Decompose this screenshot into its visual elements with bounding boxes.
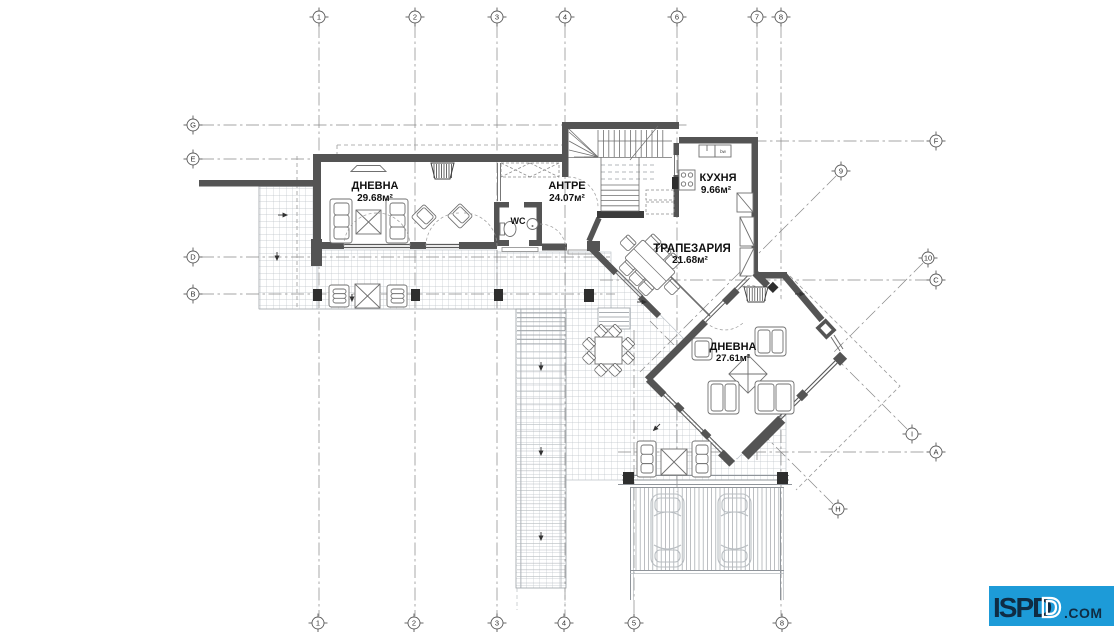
svg-text:E: E <box>190 155 195 164</box>
svg-text:C: C <box>933 276 939 285</box>
svg-text:.COM: .COM <box>1064 605 1103 621</box>
svg-text:3: 3 <box>495 619 499 628</box>
svg-text:ДНЕВНА: ДНЕВНА <box>710 341 757 353</box>
svg-text:27.61м²: 27.61м² <box>716 353 750 364</box>
svg-text:A: A <box>933 448 938 457</box>
svg-text:6: 6 <box>675 13 679 22</box>
svg-text:bw: bw <box>720 149 727 154</box>
svg-text:4: 4 <box>563 13 567 22</box>
svg-text:2: 2 <box>413 13 417 22</box>
svg-text:2: 2 <box>412 619 416 628</box>
svg-text:B: B <box>190 290 195 299</box>
svg-text:8: 8 <box>780 619 784 628</box>
svg-text:24.07м²: 24.07м² <box>549 193 585 204</box>
svg-text:1: 1 <box>317 13 321 22</box>
svg-text:7: 7 <box>755 13 759 22</box>
svg-text:9.66м²: 9.66м² <box>701 185 732 196</box>
svg-text:3: 3 <box>495 13 499 22</box>
svg-text:ТРАПЕЗАРИЯ: ТРАПЕЗАРИЯ <box>653 243 731 255</box>
svg-text:10: 10 <box>924 254 932 263</box>
svg-text:WC: WC <box>511 216 526 226</box>
svg-text:ДНЕВНА: ДНЕВНА <box>352 180 399 192</box>
svg-text:D: D <box>1041 592 1061 623</box>
svg-text:9: 9 <box>839 167 843 176</box>
svg-text:D: D <box>190 253 196 262</box>
svg-text:5: 5 <box>632 619 636 628</box>
svg-text:29.68м²: 29.68м² <box>357 193 393 204</box>
svg-text:F: F <box>934 137 939 146</box>
svg-text:4: 4 <box>562 619 566 628</box>
svg-text:8: 8 <box>779 13 783 22</box>
svg-text:1: 1 <box>316 619 320 628</box>
svg-text:I: I <box>911 430 913 439</box>
svg-text:АНТРЕ: АНТРЕ <box>548 180 585 192</box>
svg-text:21.68м²: 21.68м² <box>672 255 708 266</box>
svg-text:G: G <box>190 121 196 130</box>
svg-text:H: H <box>835 505 840 514</box>
svg-text:КУХНЯ: КУХНЯ <box>699 172 736 184</box>
